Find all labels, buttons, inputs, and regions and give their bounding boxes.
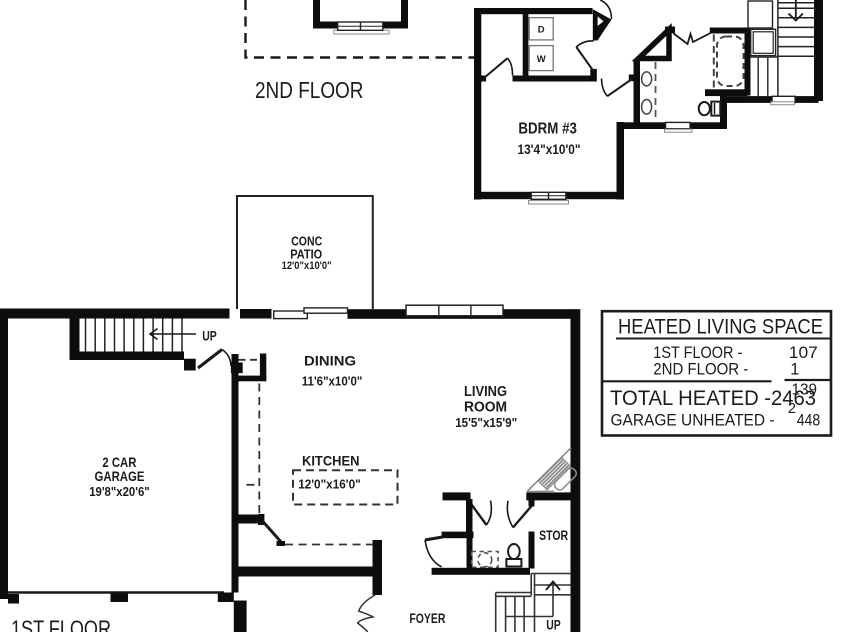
svg-text:1ST FLOOR: 1ST FLOOR	[11, 616, 111, 632]
svg-text:13'4"x10'0": 13'4"x10'0"	[518, 142, 581, 157]
svg-text:19'8"x20'6": 19'8"x20'6"	[89, 484, 150, 499]
svg-text:GARAGE UNHEATED -: GARAGE UNHEATED -	[611, 410, 775, 429]
svg-text:2: 2	[788, 401, 796, 417]
svg-text:TOTAL HEATED -2463: TOTAL HEATED -2463	[610, 386, 816, 410]
svg-text:12'0"x16'0": 12'0"x16'0"	[298, 477, 361, 492]
svg-text:107: 107	[789, 344, 818, 362]
svg-text:FOYER: FOYER	[409, 610, 445, 626]
svg-text:DINING: DINING	[304, 353, 356, 369]
svg-text:D: D	[538, 25, 545, 36]
svg-text:11'6"x10'0": 11'6"x10'0"	[302, 373, 363, 388]
svg-text:STOR: STOR	[539, 528, 568, 543]
svg-text:UP: UP	[202, 329, 217, 344]
svg-text:W: W	[537, 54, 546, 65]
svg-text:KITCHEN: KITCHEN	[302, 452, 360, 468]
svg-text:448: 448	[797, 411, 821, 429]
svg-text:ROOM: ROOM	[464, 400, 507, 416]
svg-text:1: 1	[790, 361, 799, 379]
svg-text:UP: UP	[546, 618, 561, 632]
svg-text:LIVING: LIVING	[464, 384, 507, 400]
svg-text:BDRM #3: BDRM #3	[518, 121, 577, 138]
svg-text:15'5"x15'9": 15'5"x15'9"	[455, 415, 517, 430]
svg-text:1ST FLOOR -: 1ST FLOOR -	[653, 344, 742, 362]
svg-text:2ND FLOOR: 2ND FLOOR	[255, 77, 364, 103]
svg-text:GARAGE: GARAGE	[95, 468, 145, 484]
svg-text:2ND FLOOR -: 2ND FLOOR -	[653, 361, 748, 379]
svg-text:HEATED LIVING SPACE: HEATED LIVING SPACE	[618, 315, 823, 339]
svg-text:12'0"x10'0": 12'0"x10'0"	[282, 260, 332, 272]
